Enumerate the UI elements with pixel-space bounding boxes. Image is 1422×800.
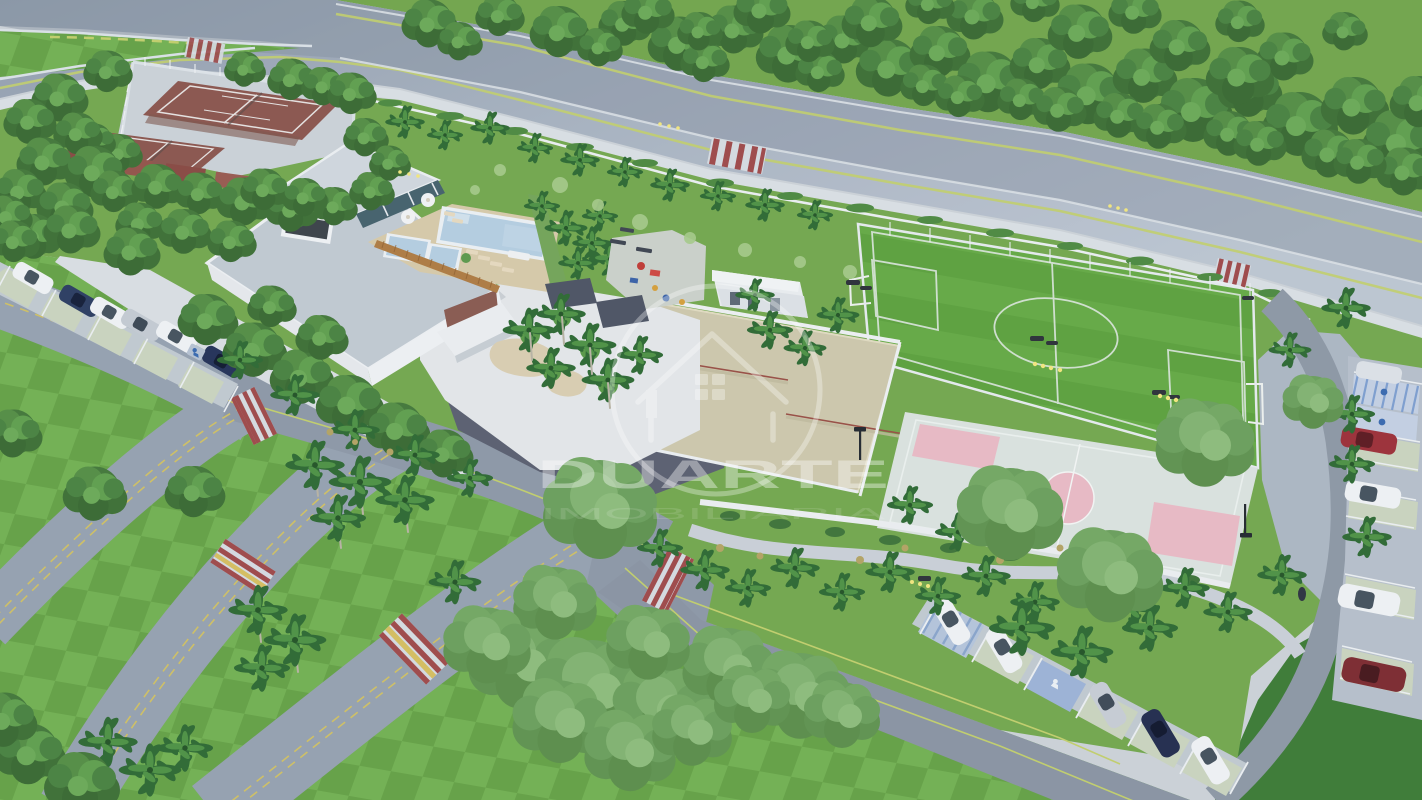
svg-text:DUARTE: DUARTE <box>537 453 889 497</box>
svg-text:IMOBILIARIA: IMOBILIARIA <box>540 506 886 523</box>
